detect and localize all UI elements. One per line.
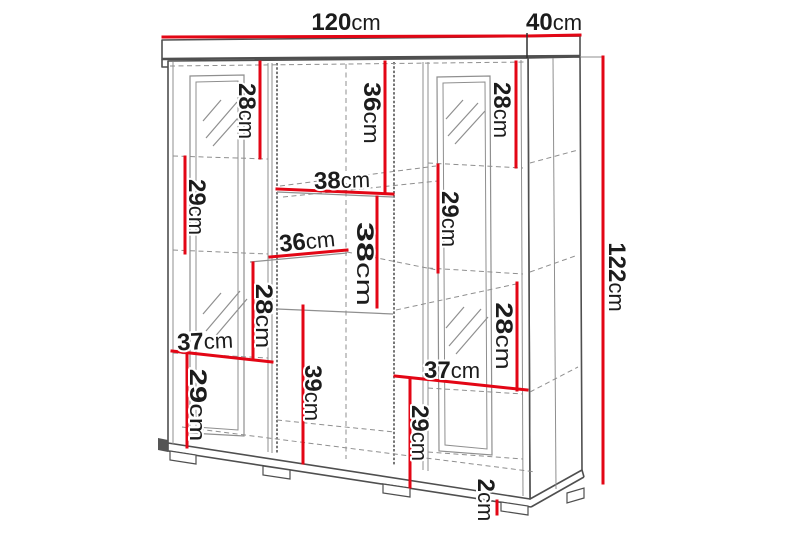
plinth-right-edge	[582, 470, 584, 477]
dim-label-width-top: 120cm	[311, 9, 380, 36]
foot-5	[567, 488, 584, 503]
dim-label-left-29: 29cm	[183, 179, 210, 235]
dim-label-right-lower-28: 28cm	[491, 302, 518, 369]
cabinet-front-face	[168, 58, 530, 499]
dim-label-foot-height-2: 2cm	[472, 479, 499, 522]
foot-1	[170, 451, 196, 464]
dim-label-mid-height-38: 38cm	[352, 222, 379, 306]
cabinet-dimension-drawing: 120cm 40cm 122cm 28cm 36cm 28cm 29cm 38c…	[0, 0, 800, 533]
dim-label-left-bottom-29: 29cm	[185, 369, 212, 442]
dim-label-height-right: 122cm	[603, 242, 630, 311]
dim-label-mid-bottom-39: 39cm	[299, 365, 326, 421]
foot-2	[263, 466, 290, 479]
dim-label-upper-mid-36: 36cm	[358, 82, 385, 144]
dim-label-right-mid-29: 29cm	[436, 191, 463, 247]
dim-line-width-top	[163, 36, 527, 37]
dim-label-upper-left-28: 28cm	[233, 83, 260, 139]
foot-4	[501, 502, 528, 515]
dim-label-right-bottom-29: 29cm	[406, 405, 433, 461]
foot-3	[383, 484, 410, 497]
dimension-diagram: 120cm 40cm 122cm 28cm 36cm 28cm 29cm 38c…	[0, 0, 800, 533]
dim-label-upper-right-28: 28cm	[488, 82, 515, 138]
dim-label-depth-top: 40cm	[526, 9, 582, 36]
dim-label-mid-width-38: 38cm	[314, 166, 371, 195]
dim-label-right-width-37: 37cm	[424, 357, 480, 384]
dim-label-left-mid-28: 28cm	[250, 284, 276, 348]
bottom-left-notch	[158, 438, 168, 452]
dim-label-left-width-37: 37cm	[176, 327, 233, 357]
